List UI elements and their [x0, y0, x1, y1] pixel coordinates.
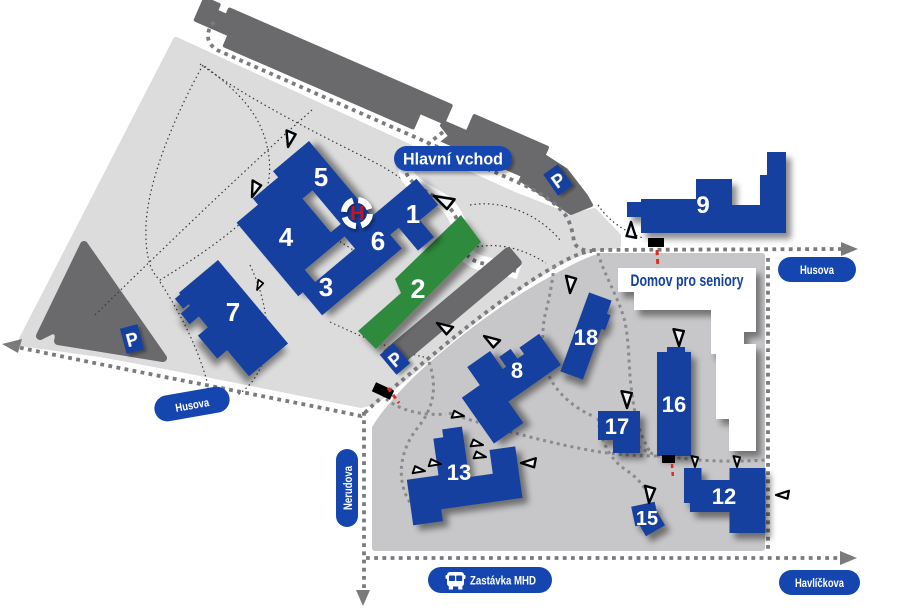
svg-text:13: 13 [447, 460, 471, 485]
svg-text:Hlavní vchod: Hlavní vchod [403, 150, 503, 169]
svg-text:Nerudova: Nerudova [343, 466, 355, 510]
svg-text:H: H [350, 203, 364, 225]
svg-text:8: 8 [511, 358, 523, 383]
svg-text:7: 7 [226, 297, 240, 327]
svg-text:Zastávka MHD: Zastávka MHD [470, 574, 536, 588]
svg-text:17: 17 [605, 414, 629, 439]
svg-text:5: 5 [314, 162, 328, 192]
svg-text:15: 15 [636, 508, 658, 530]
svg-text:16: 16 [662, 392, 686, 417]
svg-text:2: 2 [410, 274, 425, 304]
svg-text:3: 3 [319, 272, 333, 302]
svg-text:9: 9 [696, 192, 709, 219]
svg-text:Husova: Husova [800, 265, 834, 277]
svg-text:Havlíčkova: Havlíčkova [795, 578, 844, 590]
svg-text:6: 6 [371, 226, 385, 256]
svg-text:4: 4 [279, 222, 294, 252]
svg-text:Domov pro seniory: Domov pro seniory [631, 272, 745, 290]
svg-text:12: 12 [712, 484, 736, 509]
svg-text:18: 18 [574, 325, 598, 350]
svg-text:1: 1 [406, 199, 420, 229]
